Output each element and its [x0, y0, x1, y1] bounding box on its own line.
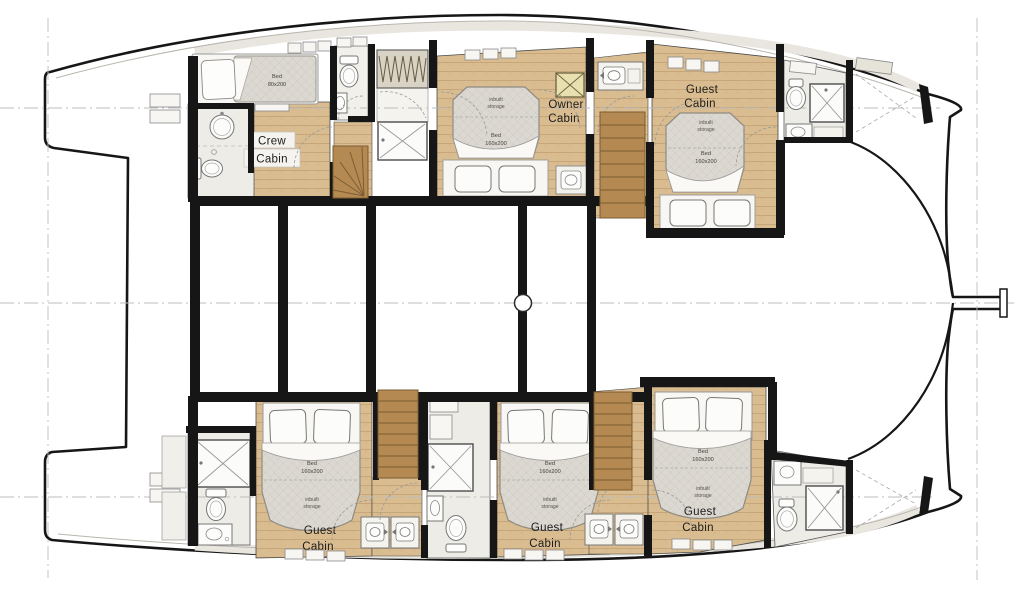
- cabin-name-line2: Cabin: [682, 522, 714, 534]
- pillow: [269, 409, 306, 444]
- drawer-row: [285, 549, 345, 561]
- cabin-name-line1: Owner: [548, 99, 583, 111]
- bowsprit-fitting: [1000, 289, 1007, 317]
- storage-label: inbuilt: [305, 497, 319, 503]
- wardrobe: [377, 50, 428, 88]
- bed-label: Bed: [545, 461, 555, 467]
- crew-bed: Bed 80x200: [192, 54, 318, 111]
- port-straight-stairs: [600, 112, 645, 218]
- bed-size-label: 160x200: [692, 457, 713, 463]
- sink-icon: [427, 496, 443, 521]
- shower: [428, 444, 473, 491]
- toilet-icon: [206, 489, 226, 521]
- stbd-stairs-2: [594, 392, 632, 490]
- cabin-name-line2: Cabin: [529, 538, 561, 550]
- pillow: [662, 397, 699, 432]
- floor-plan-canvas: Bed 80x200 Crew Cabin: [0, 0, 1024, 600]
- toilet-icon: [446, 516, 466, 553]
- corridor-vanity: [598, 62, 643, 90]
- cabin-name-line1: Guest: [531, 522, 564, 534]
- crew-bed-label: Bed: [272, 74, 282, 80]
- bed-size-label: 160x200: [301, 469, 322, 475]
- deck-hatch-icon: [556, 73, 584, 97]
- bed-step: [255, 104, 289, 111]
- cabin-name-line1: Guest: [686, 84, 719, 96]
- bed-label: Bed: [701, 151, 711, 157]
- drawer-row: [672, 539, 732, 550]
- bed-size-label: 160x200: [485, 141, 506, 147]
- yacht-floor-plan: Bed 80x200 Crew Cabin: [0, 0, 1024, 600]
- shower-drain-icon: [381, 138, 384, 141]
- pillow: [201, 59, 236, 100]
- port-hall-floor: [377, 88, 428, 122]
- bed: Bed 160x200 inbuilt storage: [500, 403, 598, 531]
- sink-icon: [198, 524, 232, 545]
- toilet-icon: [777, 499, 797, 531]
- cabin-name-line1: Guest: [304, 525, 337, 537]
- storage-label: storage: [694, 493, 711, 499]
- shower: [196, 440, 250, 487]
- shower: [378, 122, 427, 160]
- bed-label: Bed: [491, 133, 501, 139]
- stbd-aft-locker: [162, 436, 186, 488]
- stbd-aft-locker: [162, 492, 186, 540]
- drawer-row: [504, 549, 564, 560]
- bed: inbuilt storage Bed 160x200: [660, 113, 755, 230]
- bed-size-label: 160x200: [695, 159, 716, 165]
- pillow: [499, 166, 535, 192]
- stbd-stairs-1: [378, 390, 418, 478]
- mast-step: [515, 295, 532, 312]
- cabin-name-line2: Cabin: [548, 113, 580, 125]
- cabin-name-line1: Guest: [684, 506, 717, 518]
- sink-icon: [774, 461, 801, 485]
- storage-label: inbuilt: [699, 120, 713, 126]
- bed-label: Bed: [698, 449, 708, 455]
- pillow: [670, 200, 706, 226]
- bed-label: Bed: [307, 461, 317, 467]
- toilet-icon: [787, 79, 806, 110]
- pillow: [313, 409, 350, 444]
- port-spiral-stairs: [333, 146, 368, 198]
- pillow: [455, 166, 491, 192]
- crew-cabinet-row: [288, 41, 331, 53]
- pillow: [507, 409, 544, 444]
- pillow: [551, 409, 588, 444]
- crew-bed-size: 80x200: [268, 82, 286, 88]
- owner-cabinet-row: [465, 48, 516, 60]
- bed: Bed 160x200 inbuilt storage: [262, 403, 360, 531]
- storage-label: storage: [697, 127, 714, 133]
- pillow: [705, 397, 742, 432]
- storage-label: storage: [541, 504, 558, 510]
- storage-label: storage: [487, 104, 504, 110]
- storage-label: storage: [303, 504, 320, 510]
- shower: [806, 486, 843, 530]
- storage-label: inbuilt: [696, 486, 710, 492]
- toilet-icon: [340, 56, 358, 87]
- bed: Bed 160x200 inbuilt storage: [653, 392, 752, 519]
- owner-vanity: [556, 166, 586, 194]
- port-transom-step: [150, 110, 180, 123]
- pillow: [714, 200, 750, 226]
- cabin-name-line2: Cabin: [256, 154, 288, 166]
- storage-label: inbuilt: [489, 97, 503, 103]
- owner-bed: inbuilt storage Bed 160x200: [443, 87, 548, 196]
- bed-size-label: 160x200: [539, 469, 560, 475]
- cabin-name-line2: Cabin: [684, 98, 716, 110]
- counter: [803, 468, 833, 483]
- cabin-name-line1: Crew: [258, 136, 286, 148]
- shower: [810, 84, 844, 122]
- storage-label: inbuilt: [543, 497, 557, 503]
- port-transom-step: [150, 94, 180, 107]
